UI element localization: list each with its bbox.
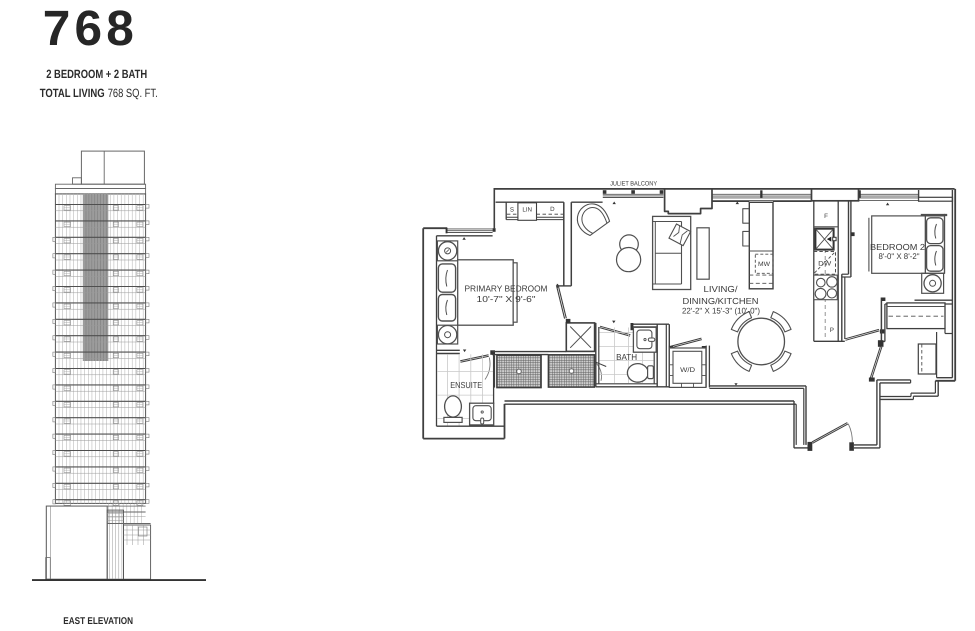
svg-text:S: S (510, 206, 514, 213)
svg-text:LIN: LIN (522, 207, 532, 214)
svg-text:ENSUITE: ENSUITE (450, 380, 482, 390)
svg-text:8'-0" X 8'-2": 8'-0" X 8'-2" (879, 252, 920, 261)
svg-text:P: P (830, 327, 834, 334)
svg-text:D: D (550, 206, 555, 213)
svg-text:F: F (824, 213, 828, 220)
svg-text:JULIET BALCONY: JULIET BALCONY (610, 181, 658, 188)
svg-text:BATH: BATH (616, 352, 637, 362)
svg-text:DW: DW (818, 261, 831, 268)
svg-text:PRIMARY BEDROOM: PRIMARY BEDROOM (465, 283, 548, 293)
svg-text:10'-7" X 9'-6": 10'-7" X 9'-6" (477, 294, 536, 304)
svg-text:2 BEDROOM + 2 BATH: 2 BEDROOM + 2 BATH (46, 67, 147, 81)
svg-text:W/D: W/D (680, 367, 695, 374)
svg-text:TOTAL LIVING768 SQ. FT.: TOTAL LIVING768 SQ. FT. (40, 86, 158, 100)
svg-text:MW: MW (758, 261, 770, 268)
svg-text:768: 768 (43, 0, 138, 56)
svg-text:BEDROOM 2: BEDROOM 2 (870, 242, 925, 252)
svg-text:DINING/KITCHEN: DINING/KITCHEN (683, 296, 759, 306)
svg-text:LIVING/: LIVING/ (704, 284, 739, 294)
svg-text:EAST ELEVATION: EAST ELEVATION (63, 616, 133, 627)
